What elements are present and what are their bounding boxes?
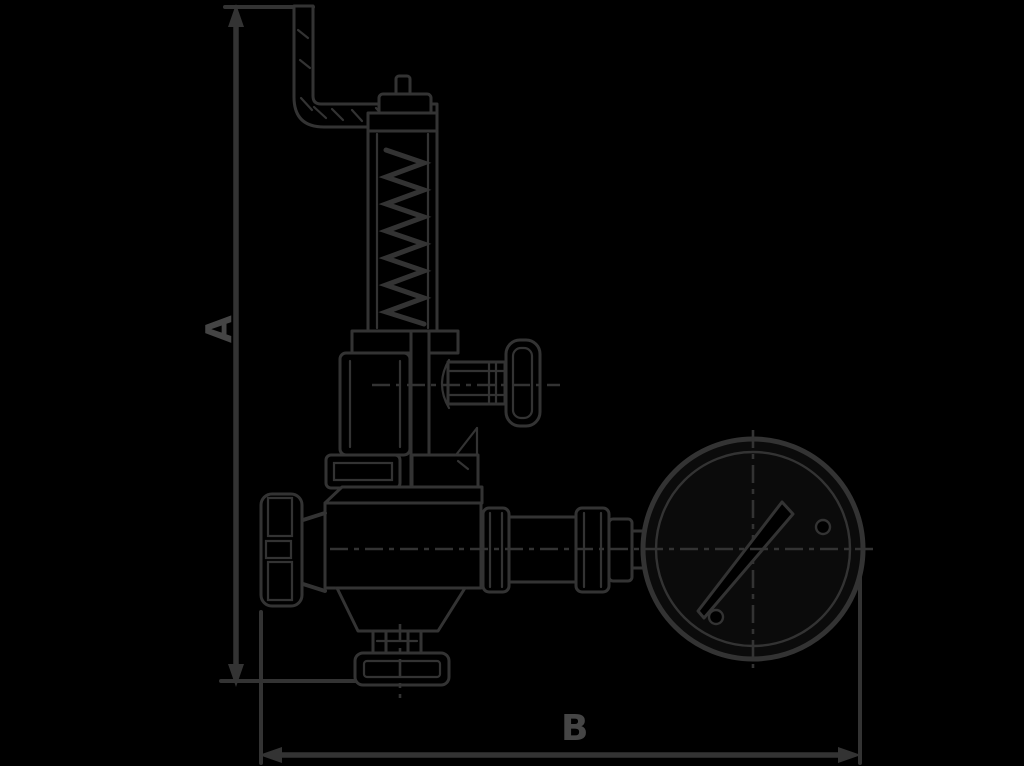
stem-edge <box>303 584 325 591</box>
valve-technical-drawing: A B <box>0 0 1024 766</box>
stem-edge <box>303 513 325 520</box>
right-fitting <box>412 455 478 489</box>
fitting-chamfer <box>456 428 477 455</box>
test-knob <box>506 340 540 426</box>
gauge-pin <box>816 520 830 534</box>
drawing-canvas: A B <box>0 0 1024 766</box>
spring-housing <box>352 76 458 353</box>
housing-collar <box>352 331 458 353</box>
dim-b-arrow-right-icon <box>838 747 861 763</box>
dim-a-label: A <box>199 315 240 343</box>
housing-tube <box>368 131 437 331</box>
valve-body-assembly <box>261 487 482 698</box>
body-top-plate <box>325 487 482 503</box>
outlet-flange <box>355 653 449 685</box>
housing-ring <box>368 113 437 131</box>
bonnet-assembly <box>326 331 478 507</box>
union-nut <box>326 455 400 488</box>
dim-a-arrow-bottom-icon <box>228 664 244 687</box>
gauge-stop-pin <box>709 610 723 624</box>
dim-b-label: B <box>561 708 588 749</box>
body-block <box>325 503 481 588</box>
